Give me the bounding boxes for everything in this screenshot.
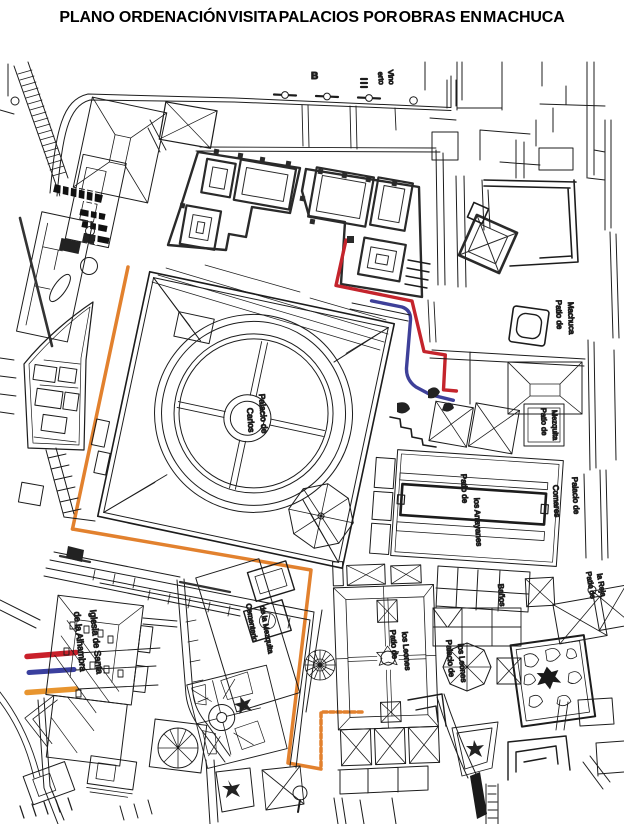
- svg-text:Carlos: Carlos: [245, 407, 257, 432]
- svg-text:Mezquita: Mezquita: [550, 410, 560, 442]
- svg-text:Baños: Baños: [496, 583, 507, 606]
- svg-text:Patio de: Patio de: [459, 474, 470, 504]
- svg-text:Palacio de: Palacio de: [257, 393, 270, 434]
- svg-text:Patio de: Patio de: [539, 408, 549, 436]
- svg-text:los Leones: los Leones: [456, 643, 468, 682]
- svg-text:Palacio de: Palacio de: [444, 639, 456, 678]
- svg-text:erto: erto: [376, 71, 386, 85]
- svg-text:Vino: Vino: [386, 69, 396, 85]
- svg-text:los Arrayanes: los Arrayanes: [472, 498, 484, 547]
- svg-text:Palacio de: Palacio de: [570, 477, 581, 515]
- svg-text:Machuca: Machuca: [566, 302, 576, 335]
- svg-text:Iglesia de Santa: Iglesia de Santa: [88, 609, 105, 674]
- svg-text:Patio de: Patio de: [388, 629, 400, 660]
- svg-text:los Leones: los Leones: [400, 631, 412, 670]
- svg-text:Patio de: Patio de: [554, 300, 564, 330]
- svg-text:B: B: [311, 71, 318, 82]
- svg-text:Comares: Comares: [551, 485, 562, 518]
